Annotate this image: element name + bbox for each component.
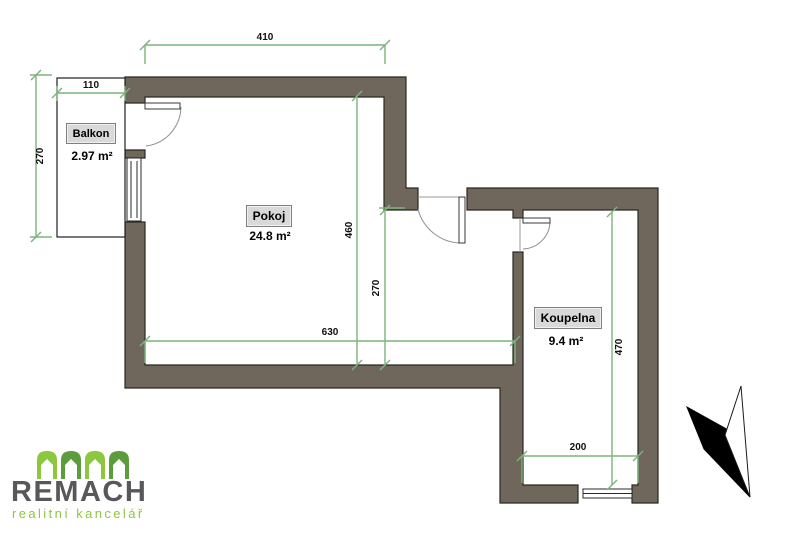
entry-door-swing-arc <box>418 209 462 243</box>
north-arrow-icon <box>687 386 750 497</box>
remach-logo-text: REMACH <box>11 478 147 506</box>
wall-left-bottom <box>125 222 578 503</box>
bathroom-door <box>520 218 550 252</box>
balcony-door-swing-arc <box>146 107 181 146</box>
remach-houses-icon <box>37 451 131 479</box>
dim-text-pokoj-right-height: 270 <box>371 263 383 313</box>
dim-text-balkon-width: 110 <box>66 80 116 92</box>
room-area-pokoj: 24.8 m² <box>240 229 300 243</box>
bathroom-door-swing-arc <box>523 221 550 249</box>
room-label-pokoj: Pokoj <box>246 205 292 227</box>
room-label-balkon: Balkon <box>66 123 116 144</box>
room-label-koupelna: Koupelna <box>534 307 602 329</box>
entry-door-panel <box>459 197 465 243</box>
balcony-window <box>127 158 141 221</box>
dim-text-balkon-depth: 270 <box>35 131 47 181</box>
wall-top-right <box>125 77 418 210</box>
room-area-balkon: 2.97 m² <box>62 149 122 163</box>
dim-text-pokoj-left-height: 460 <box>344 205 356 255</box>
balcony-door-panel <box>145 103 180 109</box>
wall-left-stub <box>125 150 145 158</box>
dim-line-630 <box>140 336 520 363</box>
balcony-door <box>145 103 181 146</box>
dim-text-pokoj-bottom-width: 630 <box>305 327 355 339</box>
remach-logo-tagline: realitní kancelář <box>12 507 145 521</box>
walls <box>125 77 658 503</box>
dim-text-koupelna-height: 470 <box>614 322 626 372</box>
room-area-koupelna: 9.4 m² <box>533 334 599 348</box>
bathroom-door-panel <box>523 218 550 223</box>
entry-door <box>418 197 465 243</box>
dim-line-200 <box>517 451 643 483</box>
dim-text-koupelna-width: 200 <box>553 442 603 454</box>
dim-text-pokoj-top-width: 410 <box>240 32 290 44</box>
floorplan-page: 410 110 270 460 270 630 200 470 Balkon 2… <box>0 0 800 533</box>
